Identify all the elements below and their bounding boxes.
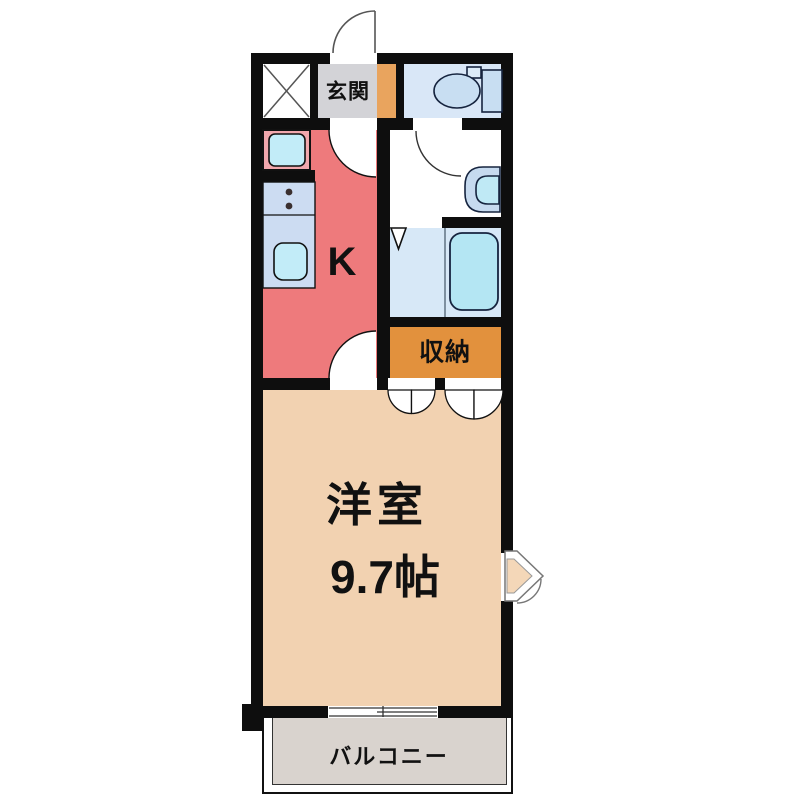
storage-label: 収納 bbox=[419, 341, 471, 366]
stove-burner-icon bbox=[286, 189, 293, 196]
washroom-door-icon bbox=[416, 131, 461, 176]
bathtub-icon bbox=[450, 233, 498, 310]
entrance-label: 玄関 bbox=[326, 82, 370, 103]
western-room-label: 洋室 bbox=[326, 482, 428, 528]
fixtures-overlay bbox=[0, 0, 800, 800]
kitchen-room-door-icon bbox=[329, 331, 376, 378]
floor-plan: 玄関 K 収納 洋室 9.7帖 バルコニー bbox=[0, 0, 800, 800]
folding-bath-door-icon bbox=[391, 228, 406, 249]
closet-doors-left-icon bbox=[388, 390, 435, 414]
x-box-cross-icon bbox=[264, 65, 309, 117]
right-wall-door-icon bbox=[505, 551, 543, 603]
kitchen-counter-icon bbox=[263, 182, 315, 288]
kitchen-top-door-icon bbox=[329, 130, 376, 177]
stove-burner-icon bbox=[286, 203, 293, 210]
washing-machine-icon bbox=[263, 130, 310, 170]
toilet-icon bbox=[434, 67, 502, 112]
wash-basin-icon bbox=[465, 167, 500, 212]
sliding-window-icon bbox=[329, 706, 437, 717]
balcony-label: バルコニー bbox=[329, 746, 449, 768]
kitchen-sink-icon bbox=[274, 243, 307, 280]
western-room-size: 9.7帖 bbox=[330, 554, 440, 600]
kitchen-label: K bbox=[328, 242, 357, 282]
closet-doors-right-icon bbox=[445, 390, 503, 419]
entrance-door-icon bbox=[333, 11, 375, 53]
